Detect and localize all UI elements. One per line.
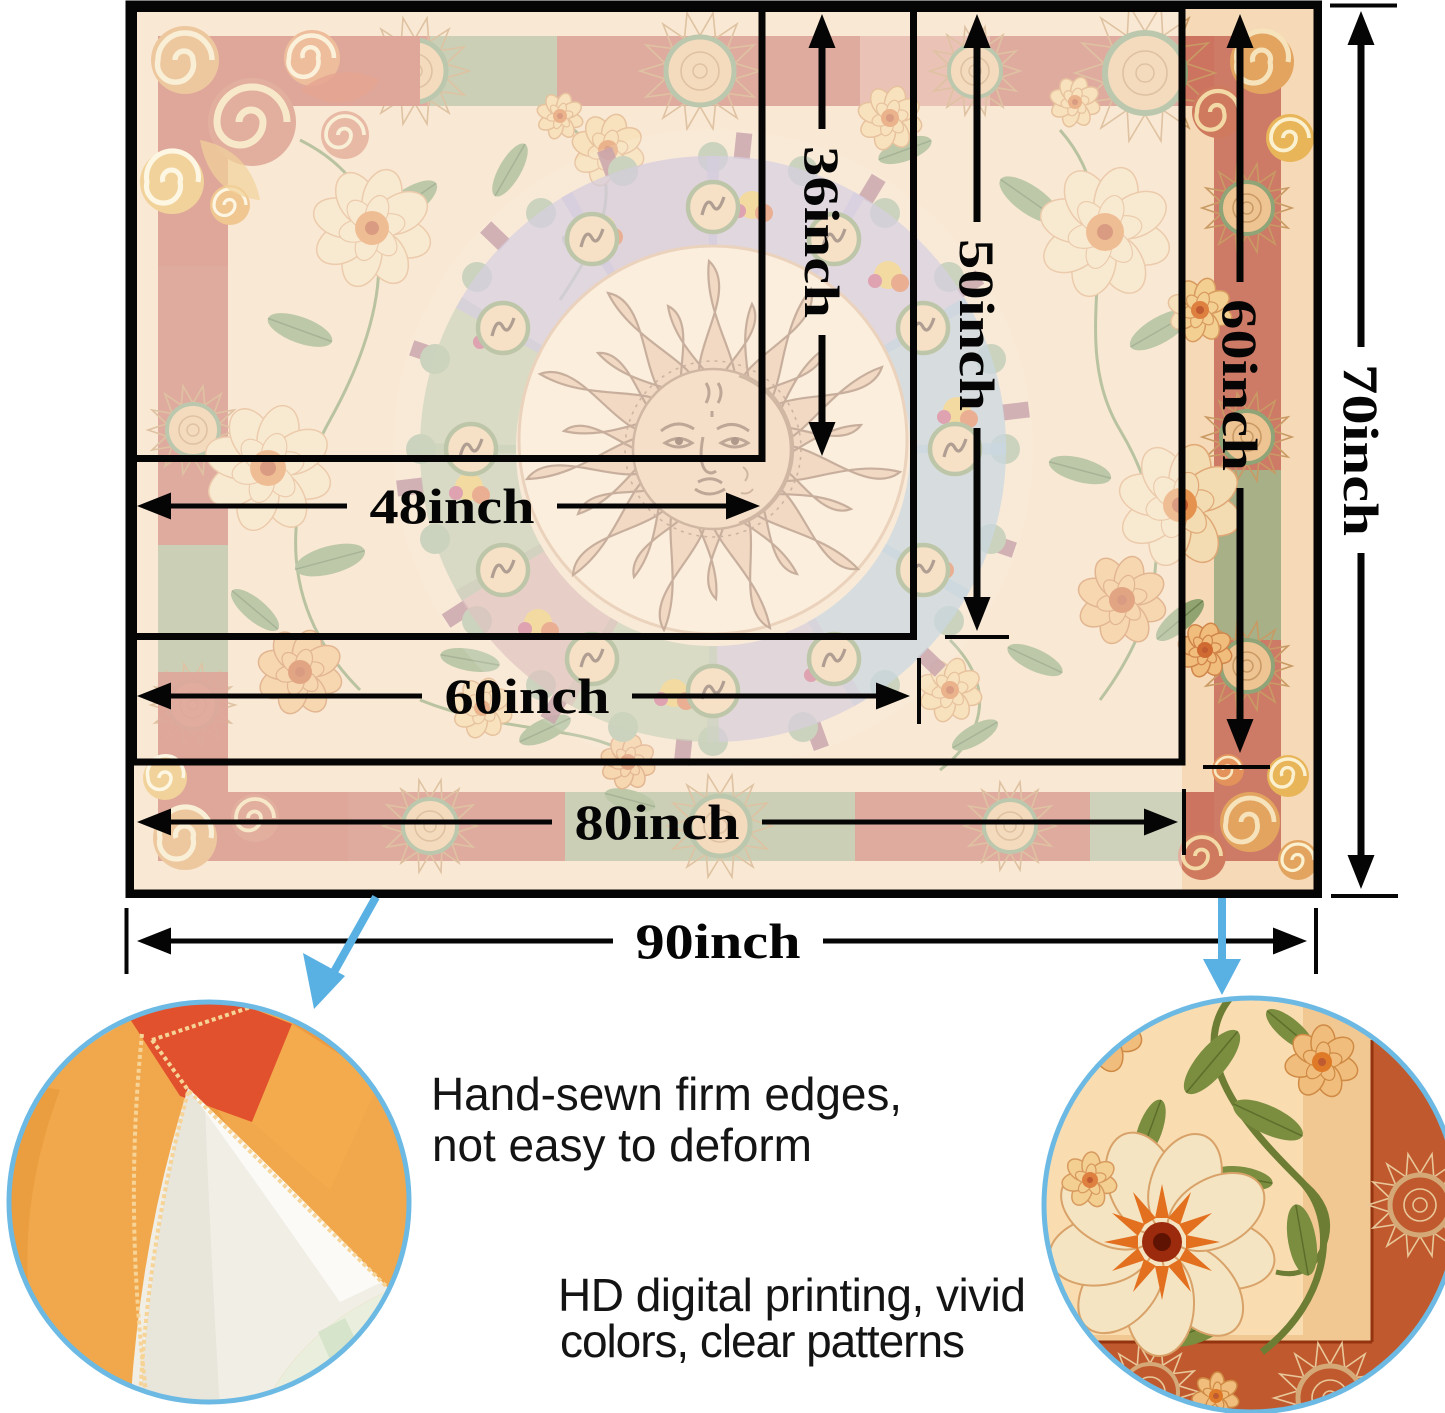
svg-text:not easy to deform: not easy to deform — [432, 1119, 812, 1171]
svg-text:36inch: 36inch — [794, 146, 850, 318]
svg-text:90inch: 90inch — [636, 913, 801, 969]
svg-text:70inch: 70inch — [1333, 364, 1389, 536]
svg-text:48inch: 48inch — [370, 478, 535, 534]
svg-text:60inch: 60inch — [1212, 299, 1268, 471]
svg-text:80inch: 80inch — [575, 794, 740, 850]
svg-text:Hand-sewn firm edges,: Hand-sewn firm edges, — [431, 1068, 902, 1120]
svg-text:HD digital printing, vivid: HD digital printing, vivid — [558, 1269, 1026, 1321]
svg-text:60inch: 60inch — [445, 668, 610, 724]
svg-text:colors, clear patterns: colors, clear patterns — [560, 1315, 965, 1367]
svg-text:50inch: 50inch — [949, 239, 1005, 411]
